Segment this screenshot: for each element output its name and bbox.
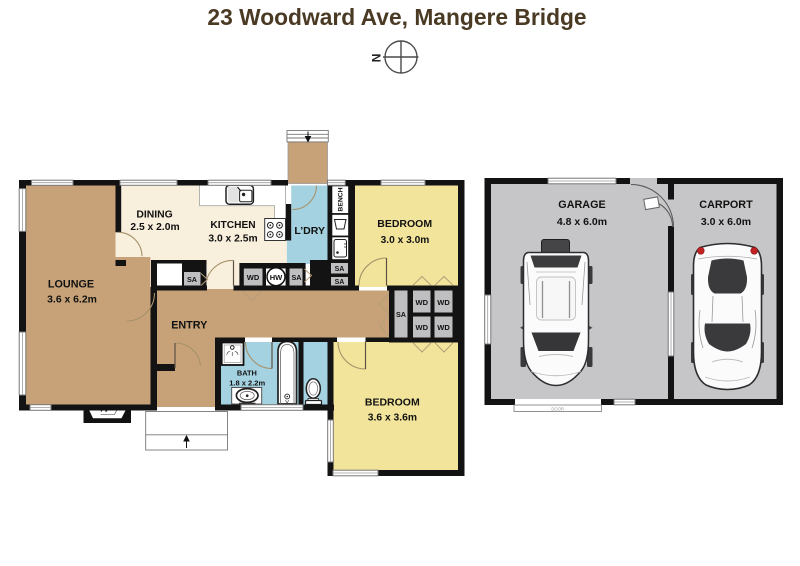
svg-text:WD: WD [416, 298, 429, 307]
svg-text:GARAGE: GARAGE [558, 199, 605, 211]
svg-text:2.5 x 2.0m: 2.5 x 2.0m [130, 222, 179, 233]
svg-text:3.6 x 6.2m: 3.6 x 6.2m [47, 295, 97, 306]
svg-text:BEDROOM: BEDROOM [377, 218, 432, 230]
svg-text:BENCH: BENCH [338, 187, 345, 211]
svg-text:SA: SA [335, 279, 345, 286]
svg-text:WD: WD [416, 323, 429, 332]
svg-text:SA: SA [292, 273, 302, 282]
svg-text:WD: WD [247, 273, 260, 282]
svg-text:KITCHEN: KITCHEN [210, 220, 255, 231]
svg-text:L’DRY: L’DRY [294, 225, 325, 237]
svg-text:1.8 x 2.2m: 1.8 x 2.2m [229, 379, 265, 388]
svg-text:DOOR: DOOR [551, 406, 564, 411]
svg-text:BATH: BATH [237, 369, 257, 378]
svg-text:SA: SA [187, 275, 197, 284]
svg-text:HW: HW [270, 273, 283, 282]
svg-text:CARPORT: CARPORT [699, 199, 753, 211]
svg-text:N: N [369, 54, 383, 63]
svg-text:WD: WD [437, 298, 450, 307]
svg-text:4.8 x 6.0m: 4.8 x 6.0m [557, 216, 607, 228]
svg-text:3.0 x 3.0m: 3.0 x 3.0m [381, 235, 430, 246]
svg-text:DINING: DINING [136, 210, 172, 221]
svg-text:ENTRY: ENTRY [171, 320, 208, 332]
svg-text:SA: SA [335, 266, 345, 273]
svg-text:WD: WD [437, 323, 450, 332]
svg-text:LOUNGE: LOUNGE [48, 279, 94, 291]
svg-text:3.0 x 6.0m: 3.0 x 6.0m [701, 216, 751, 228]
svg-text:3.0 x 2.5m: 3.0 x 2.5m [208, 234, 257, 245]
svg-text:BEDROOM: BEDROOM [365, 397, 420, 409]
svg-text:SA: SA [396, 310, 406, 319]
svg-text:3.6 x 3.6m: 3.6 x 3.6m [368, 413, 417, 424]
svg-text:23 Woodward Ave, Mangere Bridg: 23 Woodward Ave, Mangere Bridge [207, 4, 586, 30]
